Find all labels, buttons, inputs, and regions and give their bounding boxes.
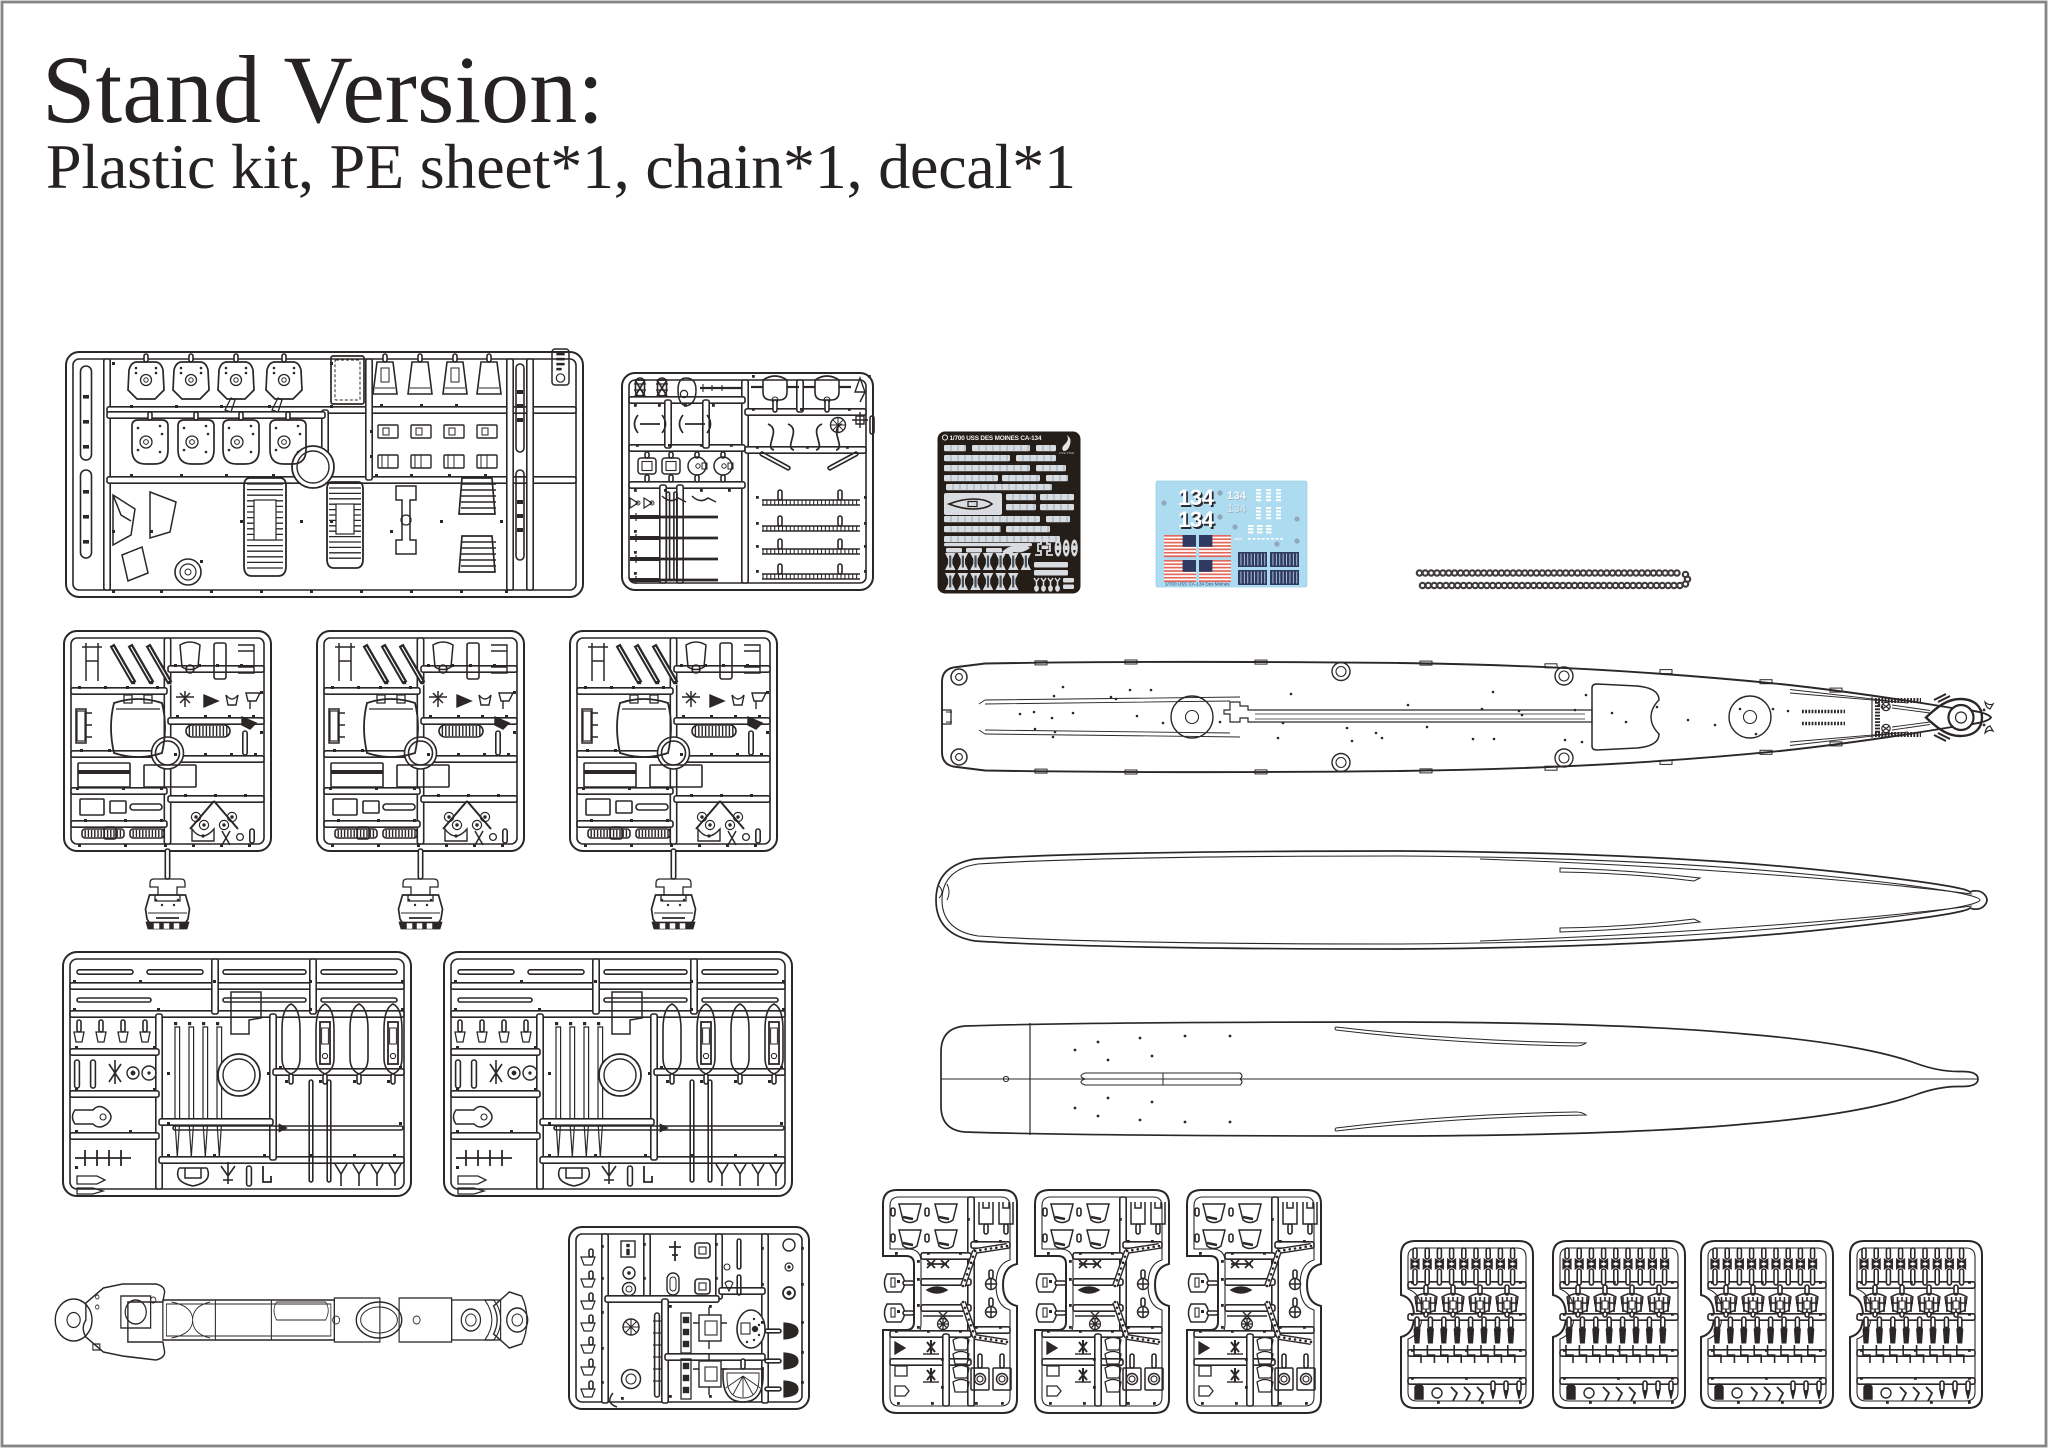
svg-text:FIVE STAR: FIVE STAR [1059,451,1075,455]
svg-text:134: 134 [1227,490,1247,502]
svg-text:1/700 USS CA-134 Des Moines: 1/700 USS CA-134 Des Moines [1165,582,1230,587]
svg-text:Plastic kit, PE sheet*1, chain: Plastic kit, PE sheet*1, chain*1, decal*… [46,131,1076,202]
svg-text:Stand Version:: Stand Version: [42,36,604,143]
svg-text:1/700 USS DES MOINES CA-134: 1/700 USS DES MOINES CA-134 [950,435,1042,442]
svg-text:134: 134 [1227,503,1247,515]
svg-text:134: 134 [1178,507,1215,532]
